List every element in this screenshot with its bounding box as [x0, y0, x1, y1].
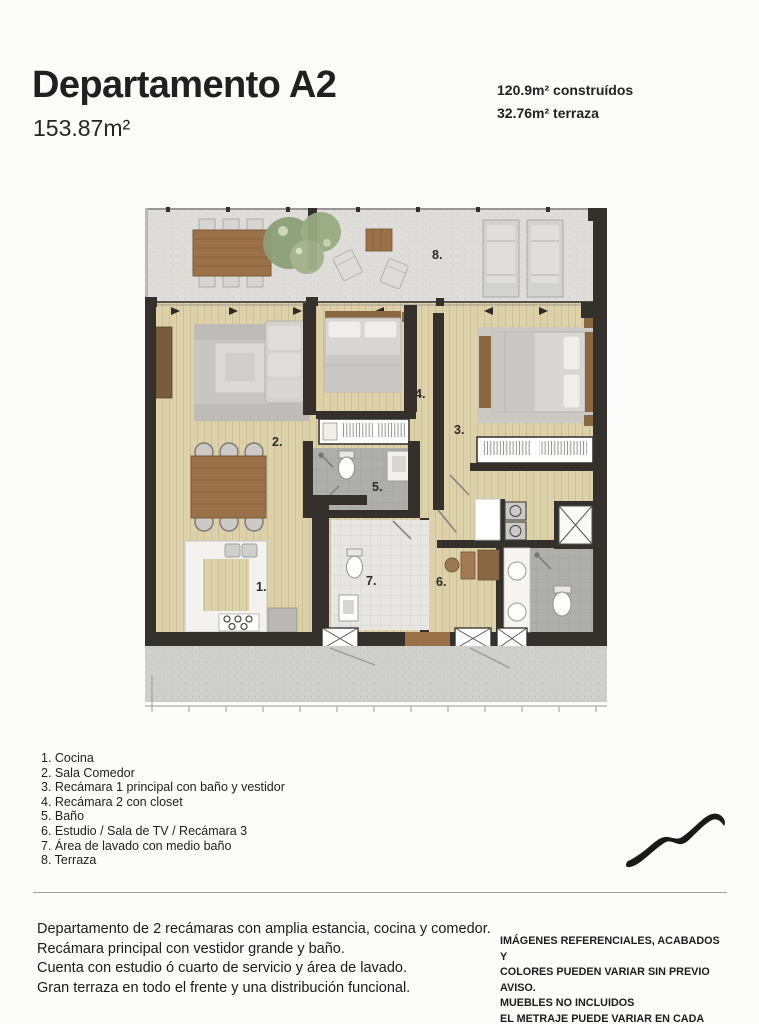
built-area: 120.9m² construídos — [497, 79, 633, 102]
terrace-area: 8. — [145, 207, 607, 302]
legend-item: 3. Recámara 1 principal con baño y vesti… — [41, 780, 285, 795]
legend-item: 4. Recámara 2 con closet — [41, 795, 285, 810]
room-label-terraza: 8. — [432, 248, 442, 262]
legend-item: 5. Baño — [41, 809, 285, 824]
toilet-icon — [339, 451, 355, 479]
room-label-sala: 2. — [272, 435, 282, 449]
walk-in-closet — [477, 437, 593, 463]
terrace-area: 32.76m² terraza — [497, 102, 633, 125]
description-line: Gran terraza en todo el frente y una dis… — [37, 979, 491, 999]
total-area: 153.87m² — [33, 115, 130, 142]
elevator-shaft — [554, 501, 597, 549]
room-label-cocina: 1. — [256, 580, 266, 594]
footer-divider — [33, 892, 727, 893]
outdoor-dining-table — [193, 219, 271, 287]
description-line: Departamento de 2 recámaras con amplia e… — [37, 920, 491, 940]
description-line: Cuenta con estudio ó cuarto de servicio … — [37, 959, 491, 979]
stove — [219, 614, 259, 631]
room-legend: 1. Cocina 2. Sala Comedor 3. Recámara 1 … — [41, 751, 285, 868]
brochure-page: Departamento A2 153.87m² 120.9m² constru… — [0, 0, 759, 1024]
legend-item: 1. Cocina — [41, 751, 285, 766]
laundry-area: 7. — [331, 520, 429, 630]
room-label-estudio: 6. — [436, 575, 446, 589]
fridge — [268, 608, 297, 632]
bed-headboard — [585, 332, 593, 412]
legend-item: 7. Área de lavado con medio baño — [41, 839, 285, 854]
room-label-bano: 5. — [372, 480, 382, 494]
apartment-description: Departamento de 2 recámaras con amplia e… — [37, 920, 491, 998]
walkway — [145, 646, 607, 712]
floor-plan-figure: 8. — [141, 205, 625, 730]
legend-item: 8. Terraza — [41, 853, 285, 868]
description-line: Recámara principal con vestidor grande y… — [37, 940, 491, 960]
dining-table — [191, 443, 266, 531]
cabinet — [478, 550, 499, 580]
page-title: Departamento A2 — [32, 64, 336, 107]
area-metrics: 120.9m² construídos 32.76m² terraza — [497, 79, 633, 125]
room-label-lavado: 7. — [366, 574, 376, 588]
room-label-recamara1: 3. — [454, 423, 464, 437]
toilet-icon — [347, 549, 363, 578]
desk — [461, 552, 475, 579]
legend-item: 2. Sala Comedor — [41, 766, 285, 781]
desk-chair — [445, 558, 459, 572]
floor-plan: 8. — [141, 205, 625, 730]
bed-bench — [479, 336, 491, 408]
disclaimer-line: MUEBLES NO INCLUIDOS — [500, 996, 720, 1012]
disclaimer-line: EL METRAJE PUEDE VARIAR EN CADA NIVEL — [500, 1012, 720, 1024]
closet-bedroom2 — [319, 419, 409, 444]
disclaimer: IMÁGENES REFERENCIALES, ACABADOS Y COLOR… — [500, 934, 720, 1024]
legend-item: 6. Estudio / Sala de TV / Recámara 3 — [41, 824, 285, 839]
toilet-icon — [553, 586, 571, 616]
disclaimer-line: COLORES PUEDEN VARIAR SIN PREVIO AVISO. — [500, 965, 720, 996]
mountain-squiggle-logo — [622, 800, 726, 876]
tv-console — [156, 327, 172, 398]
terrace-left-edge — [145, 208, 148, 302]
sofa — [265, 321, 305, 403]
disclaimer-line: IMÁGENES REFERENCIALES, ACABADOS Y — [500, 934, 720, 965]
